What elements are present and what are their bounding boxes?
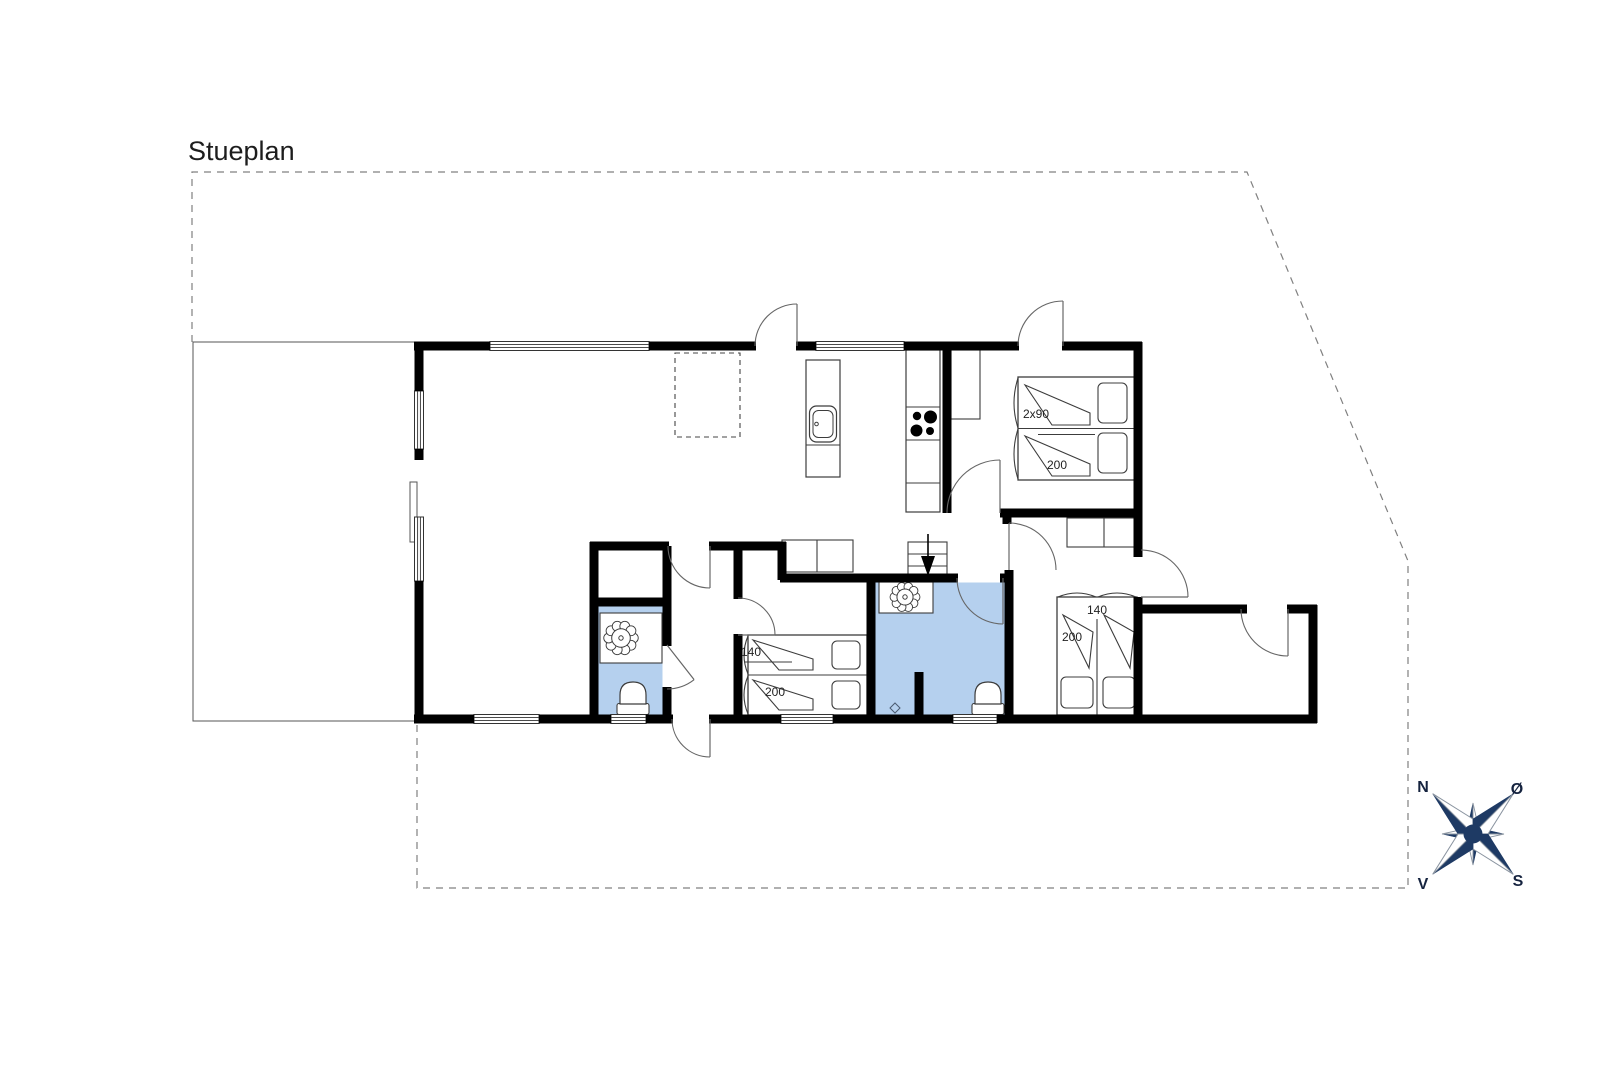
window: [415, 517, 424, 581]
window: [474, 715, 539, 724]
floorplan-page: Stueplan2x90200140200140200NØSV: [0, 0, 1600, 1066]
floorplan-canvas: Stueplan2x90200140200140200NØSV: [0, 0, 1600, 1066]
toilet-tank: [617, 704, 649, 715]
pillow: [832, 681, 860, 709]
washbasin-icon: [890, 583, 920, 612]
compass-label-east: Ø: [1511, 781, 1523, 798]
compass-rose: [1433, 794, 1514, 875]
compass-label-north: N: [1417, 779, 1429, 796]
bed3-width-label: 140: [1087, 603, 1107, 617]
pillow: [1098, 383, 1127, 423]
pillow: [1098, 433, 1127, 473]
compass-label-south: S: [1513, 873, 1524, 890]
window: [953, 715, 997, 724]
compass-label-west: V: [1418, 876, 1429, 893]
stove-burner-icon: [913, 412, 921, 420]
window: [415, 391, 424, 449]
pillow: [1103, 677, 1135, 708]
bed2-width-label: 140: [741, 645, 761, 659]
kitchen-sink: [810, 406, 837, 442]
window: [490, 342, 649, 351]
toilet-tank: [972, 704, 1004, 715]
wardrobe: [951, 350, 980, 419]
bed1-width-label: 2x90: [1023, 407, 1049, 421]
stove-burner-icon: [924, 411, 937, 424]
toilet-bowl: [975, 682, 1001, 704]
bed2-length-label: 200: [765, 685, 785, 699]
window: [781, 715, 833, 724]
bed1-length-label: 200: [1047, 458, 1067, 472]
pillow: [1061, 677, 1093, 708]
bed3-length-label: 200: [1062, 630, 1082, 644]
plan-title: Stueplan: [188, 136, 295, 166]
toilet-bowl: [620, 682, 646, 704]
window: [816, 342, 904, 351]
pillow: [832, 641, 860, 669]
stove-burner-icon: [911, 425, 923, 437]
window: [611, 715, 646, 724]
washbasin-icon: [604, 621, 639, 654]
stove-burner-icon: [926, 427, 934, 435]
